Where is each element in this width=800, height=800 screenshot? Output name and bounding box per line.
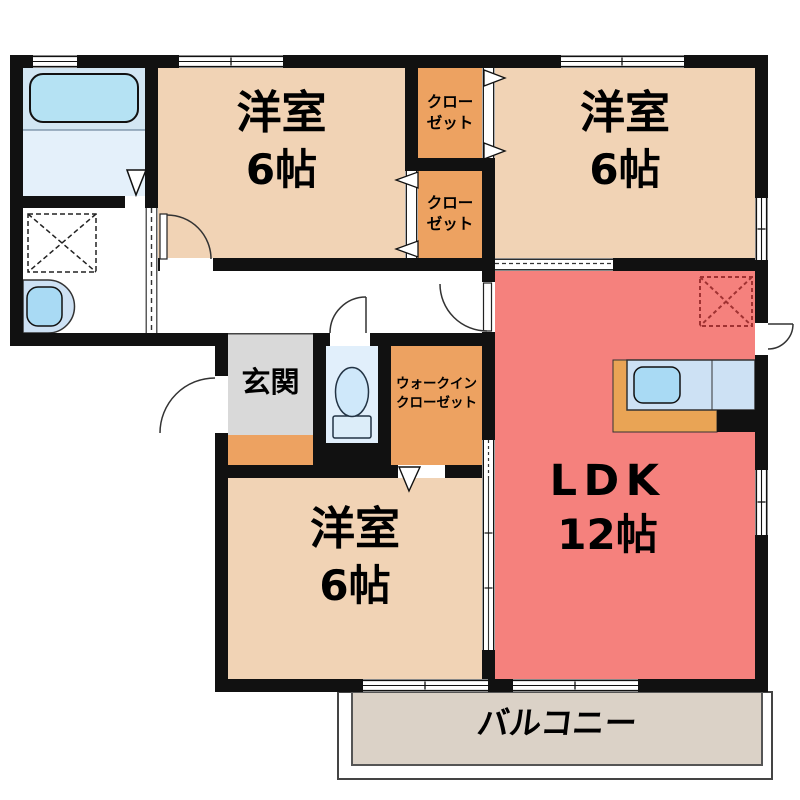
kitchen-partition-wall (717, 410, 755, 432)
bedroom1-size: 6帖 (158, 147, 405, 193)
window-bedroom2-right (755, 198, 768, 260)
label-closet-bottom: クロー ゼット (416, 193, 484, 235)
closet-top-line1: クロー (416, 92, 484, 113)
closet-top-line2: ゼット (416, 113, 484, 134)
window-bedroom1-top (179, 55, 283, 68)
entrance-door (160, 375, 228, 434)
label-ldk: LDK 12帖 (485, 458, 730, 558)
window-ldk-balcony (513, 679, 638, 692)
bathtub (30, 74, 138, 122)
label-bedroom1: 洋室 6帖 (158, 88, 405, 193)
label-walk-in-closet: ウォークイン クローゼット (391, 375, 482, 413)
bedroom1-name: 洋室 (158, 88, 405, 138)
hallway-floor (145, 271, 482, 333)
label-balcony: バルコニー (350, 706, 764, 741)
sliding-door-bedroom2-ldk (495, 258, 613, 271)
window-ldk-right (755, 470, 768, 535)
closet-bottom-line2: ゼット (416, 214, 484, 235)
ldk-service-door (755, 323, 793, 355)
bedroom3-name: 洋室 (228, 504, 482, 554)
washbasin-bowl (27, 287, 62, 326)
bathroom-floor-lower (23, 130, 145, 196)
window-bedroom3-balcony (363, 679, 488, 692)
label-bedroom3: 洋室 6帖 (228, 504, 482, 609)
label-entrance: 玄関 (228, 367, 313, 399)
window-bedroom2-top (561, 55, 684, 68)
wic-line1: ウォークイン (391, 375, 482, 394)
label-bedroom2: 洋室 6帖 (495, 88, 755, 193)
entrance-step (228, 435, 313, 465)
washroom-opening (145, 208, 158, 333)
floor-plan: 洋室 6帖 洋室 6帖 洋室 6帖 LDK 12帖 クロー ゼット クロー ゼッ… (0, 0, 800, 800)
ldk-size: 12帖 (485, 512, 730, 558)
closet-bottom-line1: クロー (416, 193, 484, 214)
toilet (333, 368, 371, 439)
window-bath-top (33, 55, 77, 68)
ldk-name: LDK (485, 458, 730, 505)
entrance-name: 玄関 (228, 367, 313, 399)
label-closet-top: クロー ゼット (416, 92, 484, 134)
bedroom3-size: 6帖 (228, 563, 482, 609)
wic-line2: クローゼット (391, 394, 482, 413)
balcony-name: バルコニー (350, 706, 764, 741)
bedroom2-size: 6帖 (495, 147, 755, 193)
kitchen-counter (613, 360, 755, 432)
bedroom2-name: 洋室 (495, 88, 755, 138)
kitchen-sink (634, 367, 680, 403)
